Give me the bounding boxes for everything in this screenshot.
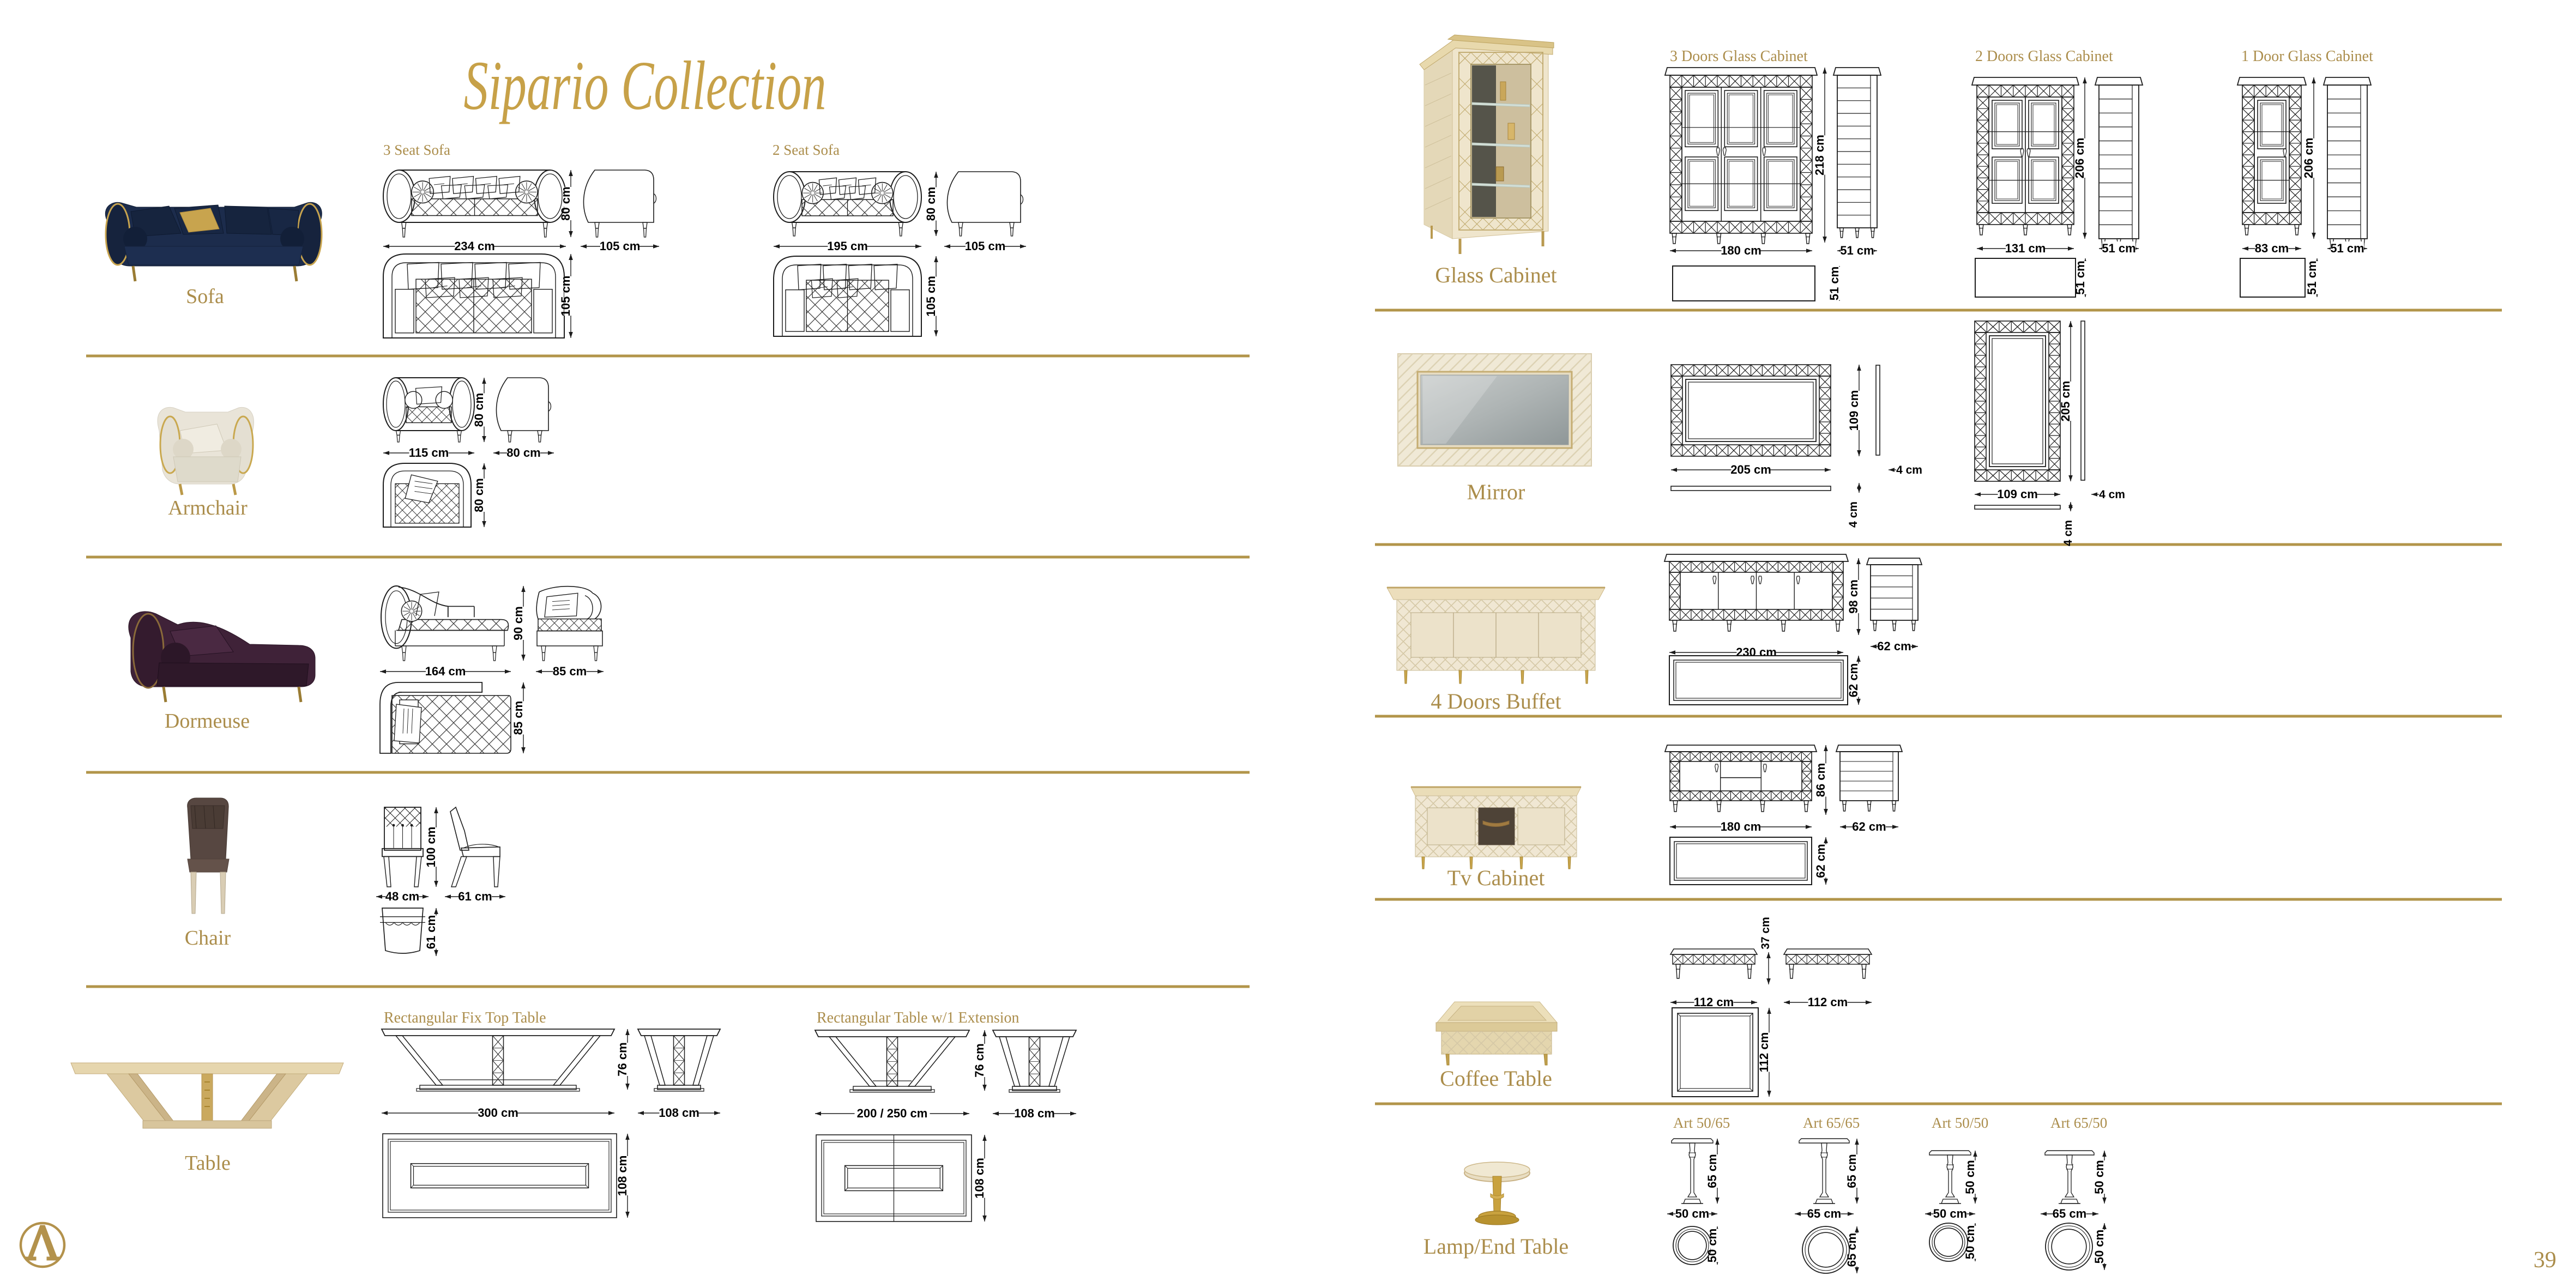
svg-text:3 Seat Sofa: 3 Seat Sofa — [383, 142, 450, 158]
svg-text:86 cm: 86 cm — [1814, 763, 1827, 797]
svg-text:Lamp/End Table: Lamp/End Table — [1423, 1234, 1568, 1259]
svg-text:61 cm: 61 cm — [424, 915, 438, 949]
svg-text:4 Doors Buffet: 4 Doors Buffet — [1431, 689, 1561, 713]
svg-text:80 cm: 80 cm — [924, 187, 938, 221]
svg-text:108 cm: 108 cm — [1014, 1106, 1055, 1120]
svg-text:50 cm: 50 cm — [1705, 1229, 1719, 1262]
svg-text:80 cm: 80 cm — [559, 186, 572, 220]
svg-text:105 cm: 105 cm — [924, 276, 938, 317]
svg-text:62 cm: 62 cm — [1852, 820, 1886, 833]
svg-text:112 cm: 112 cm — [1808, 995, 1848, 1009]
svg-text:62 cm: 62 cm — [1847, 663, 1860, 697]
svg-text:112 cm: 112 cm — [1757, 1032, 1771, 1072]
svg-text:39: 39 — [2533, 1248, 2556, 1273]
svg-text:200 / 250 cm: 200 / 250 cm — [857, 1106, 928, 1120]
svg-text:109 cm: 109 cm — [1997, 487, 2038, 501]
svg-text:65 cm: 65 cm — [1845, 1233, 1859, 1267]
svg-text:218 cm: 218 cm — [1813, 135, 1826, 176]
svg-text:234 cm: 234 cm — [454, 239, 495, 253]
svg-text:51 cm: 51 cm — [2305, 261, 2319, 294]
svg-text:76 cm: 76 cm — [973, 1043, 986, 1077]
svg-text:195 cm: 195 cm — [827, 239, 868, 253]
svg-text:180 cm: 180 cm — [1721, 244, 1761, 257]
svg-text:Mirror: Mirror — [1467, 480, 1525, 504]
svg-text:4 cm: 4 cm — [2099, 488, 2125, 501]
svg-text:2 Doors Glass Cabinet: 2 Doors Glass Cabinet — [1975, 48, 2113, 65]
svg-text:61 cm: 61 cm — [458, 890, 492, 903]
svg-text:1 Door Glass Cabinet: 1 Door Glass Cabinet — [2241, 48, 2373, 65]
svg-text:Glass Cabinet: Glass Cabinet — [1435, 263, 1557, 287]
svg-text:Sipario Collection: Sipario Collection — [464, 47, 827, 124]
svg-text:80 cm: 80 cm — [472, 393, 486, 427]
svg-text:230 cm: 230 cm — [1736, 645, 1777, 659]
svg-text:51 cm: 51 cm — [1840, 244, 1874, 257]
svg-text:4 cm: 4 cm — [1896, 464, 1922, 476]
svg-text:50 cm: 50 cm — [2092, 1160, 2106, 1194]
svg-text:105 cm: 105 cm — [965, 239, 1006, 253]
svg-text:100 cm: 100 cm — [424, 827, 438, 868]
svg-text:105 cm: 105 cm — [559, 276, 572, 317]
svg-text:164 cm: 164 cm — [425, 664, 466, 678]
svg-text:Art 50/65: Art 50/65 — [1673, 1115, 1730, 1131]
svg-text:105 cm: 105 cm — [600, 239, 641, 253]
svg-text:206 cm: 206 cm — [2302, 138, 2315, 179]
svg-text:Sofa: Sofa — [186, 285, 224, 308]
svg-text:Table: Table — [185, 1152, 231, 1175]
svg-text:65 cm: 65 cm — [1845, 1154, 1859, 1188]
svg-text:80 cm: 80 cm — [472, 478, 486, 512]
svg-text:205 cm: 205 cm — [2059, 381, 2072, 422]
svg-text:98 cm: 98 cm — [1847, 579, 1860, 613]
svg-text:115 cm: 115 cm — [409, 446, 449, 459]
svg-text:Art 65/50: Art 65/50 — [2050, 1115, 2107, 1131]
svg-text:50 cm: 50 cm — [1675, 1207, 1709, 1220]
svg-text:76 cm: 76 cm — [616, 1042, 629, 1076]
svg-text:2 Seat Sofa: 2 Seat Sofa — [773, 142, 840, 158]
svg-text:Chair: Chair — [185, 927, 231, 950]
svg-text:50 cm: 50 cm — [1963, 1225, 1977, 1259]
svg-text:Tv Cabinet: Tv Cabinet — [1447, 866, 1545, 890]
svg-text:Art 50/50: Art 50/50 — [1932, 1115, 1988, 1131]
svg-text:4 cm: 4 cm — [1847, 501, 1860, 528]
svg-text:51 cm: 51 cm — [2330, 241, 2364, 255]
svg-text:112 cm: 112 cm — [1694, 995, 1734, 1009]
svg-text:108 cm: 108 cm — [616, 1156, 629, 1196]
svg-text:50 cm: 50 cm — [1933, 1207, 1967, 1220]
svg-text:Armchair: Armchair — [168, 497, 248, 519]
svg-text:180 cm: 180 cm — [1721, 820, 1761, 833]
svg-text:62 cm: 62 cm — [1814, 844, 1827, 878]
svg-text:51 cm: 51 cm — [1827, 267, 1841, 300]
svg-text:85 cm: 85 cm — [553, 664, 587, 678]
svg-text:50 cm: 50 cm — [2092, 1230, 2106, 1263]
svg-text:51 cm: 51 cm — [2073, 261, 2087, 294]
svg-text:206 cm: 206 cm — [2073, 138, 2086, 179]
svg-text:80 cm: 80 cm — [506, 446, 540, 459]
svg-text:37 cm: 37 cm — [1759, 917, 1772, 950]
svg-text:108 cm: 108 cm — [659, 1106, 699, 1120]
svg-text:Rectangular Fix Top Table: Rectangular Fix Top Table — [384, 1009, 546, 1026]
svg-text:108 cm: 108 cm — [973, 1158, 986, 1199]
svg-text:131 cm: 131 cm — [2005, 241, 2046, 255]
svg-text:51 cm: 51 cm — [2102, 241, 2135, 255]
svg-text:205 cm: 205 cm — [1730, 463, 1771, 476]
svg-text:Rectangular Table w/1 Extensio: Rectangular Table w/1 Extension — [817, 1009, 1019, 1026]
svg-text:50 cm: 50 cm — [1963, 1160, 1977, 1194]
svg-text:65 cm: 65 cm — [1807, 1207, 1841, 1220]
svg-text:Dormeuse: Dormeuse — [165, 710, 250, 733]
svg-text:65 cm: 65 cm — [2053, 1207, 2086, 1220]
svg-text:Coffee Table: Coffee Table — [1440, 1066, 1552, 1091]
svg-text:Art 65/65: Art 65/65 — [1803, 1115, 1860, 1131]
svg-text:4 cm: 4 cm — [2062, 520, 2074, 546]
svg-text:48 cm: 48 cm — [385, 890, 419, 903]
svg-text:3 Doors Glass Cabinet: 3 Doors Glass Cabinet — [1670, 48, 1808, 65]
svg-text:62 cm: 62 cm — [1877, 639, 1911, 653]
svg-text:65 cm: 65 cm — [1705, 1154, 1719, 1188]
svg-text:83 cm: 83 cm — [2255, 241, 2289, 255]
svg-text:90 cm: 90 cm — [511, 606, 525, 640]
svg-text:300 cm: 300 cm — [478, 1106, 518, 1120]
svg-text:109 cm: 109 cm — [1847, 390, 1861, 431]
svg-text:85 cm: 85 cm — [511, 701, 525, 735]
